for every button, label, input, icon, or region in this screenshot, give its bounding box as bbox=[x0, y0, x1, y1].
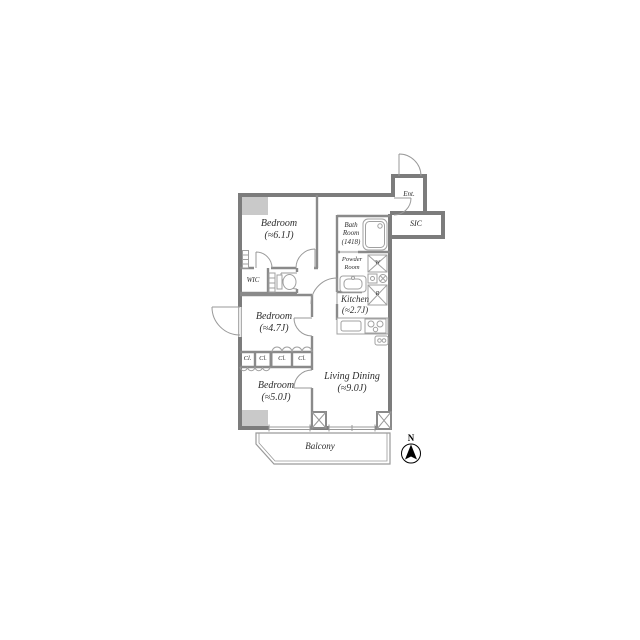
powder-room-label: PowderRoom bbox=[342, 256, 362, 271]
sic-label: SIC bbox=[410, 219, 422, 228]
toilet-icon bbox=[277, 275, 296, 290]
utility-drain-icon bbox=[368, 274, 387, 283]
window-grate-icon bbox=[243, 251, 249, 269]
compass-icon bbox=[402, 444, 421, 463]
stove-icon bbox=[365, 319, 386, 333]
wic-label: WIC bbox=[247, 276, 260, 284]
sink-icon bbox=[341, 321, 361, 331]
balcony-label: Balcony bbox=[305, 441, 335, 452]
closet-label: Cl. bbox=[259, 355, 267, 363]
closet-label: Cl. bbox=[298, 355, 306, 363]
bedroom3-label: Bedroom(≈5.0J) bbox=[258, 380, 294, 404]
bedroom1-label: Bedroom(≈6.1J) bbox=[261, 218, 297, 242]
bathroom-label: BathRoom(1418) bbox=[342, 221, 361, 246]
closet-label: Cl. bbox=[278, 355, 286, 363]
hall-living-door-arc bbox=[311, 278, 337, 304]
entrance-door-arc bbox=[399, 154, 421, 176]
north-label: N bbox=[408, 433, 415, 444]
fridge-label: R bbox=[376, 291, 380, 298]
vent-icon bbox=[375, 336, 388, 345]
floorplan-drawing bbox=[0, 0, 640, 640]
wic-door-arc bbox=[256, 252, 272, 268]
washbasin-icon bbox=[340, 276, 366, 292]
bedroom2-door-arc bbox=[294, 318, 312, 336]
casement-window-arc bbox=[212, 307, 240, 335]
washer-label: W bbox=[375, 260, 380, 267]
bedroom1-door-arc bbox=[296, 249, 315, 268]
closet-label: Cl. bbox=[244, 355, 252, 363]
kitchen-counter-icon bbox=[337, 318, 388, 334]
bedroom3-door-arc bbox=[294, 370, 312, 388]
floor-plan: Bedroom(≈6.1J) BathRoom(1418) Ent. SIC W… bbox=[0, 0, 640, 640]
living-dining-label: Living Dining(≈9.0J) bbox=[324, 371, 380, 395]
bedroom2-label: Bedroom(≈4.7J) bbox=[256, 311, 292, 335]
kitchen-label: Kitchen(≈2.7J) bbox=[341, 294, 369, 315]
bathtub-icon bbox=[363, 219, 387, 250]
entrance-label: Ent. bbox=[403, 190, 414, 198]
pipe-shelf-icon bbox=[269, 273, 275, 292]
